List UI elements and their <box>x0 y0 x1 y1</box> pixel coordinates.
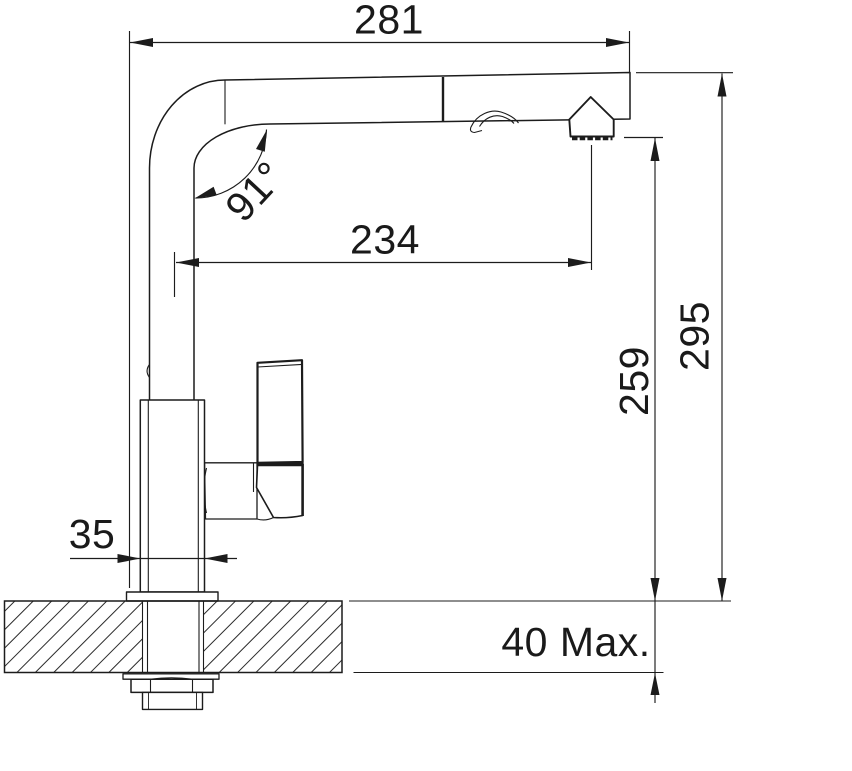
countertop-hatch-left <box>5 602 143 673</box>
dim-label-spout-reach: 281 <box>354 0 424 43</box>
arrowhead-right <box>205 554 228 563</box>
arrowhead-lower <box>195 187 217 199</box>
dimension-outlet-height: 259 <box>611 138 663 602</box>
dim-label-deck-thickness: 40 Max. <box>501 619 650 665</box>
base-plate <box>127 592 219 601</box>
dim-label-outlet-reach: 234 <box>350 217 420 263</box>
dim-label-body-width: 35 <box>69 511 116 557</box>
faucet-dimension-drawing: 281 91° 234 259 295 35 <box>0 0 852 771</box>
mounting-nut <box>131 679 213 692</box>
countertop-hatch-right <box>204 602 342 673</box>
dimension-spout-angle: 91° <box>195 130 294 231</box>
body-housing <box>140 400 204 592</box>
dim-label-outlet-height: 259 <box>611 346 657 416</box>
handle-socket <box>257 466 303 518</box>
washer <box>123 674 219 679</box>
arrowhead-bottom <box>651 578 660 601</box>
arrowhead-right <box>568 258 591 267</box>
arrowhead-up <box>651 673 660 695</box>
arrowhead-top <box>651 138 660 161</box>
dim-label-total-height: 295 <box>672 301 718 371</box>
mounting-body <box>127 400 219 601</box>
handle-lever <box>204 360 304 520</box>
tailpiece <box>143 692 203 709</box>
arrowhead-upper <box>256 130 267 152</box>
dim-label-spout-angle: 91° <box>216 153 293 231</box>
pullout-clip-tab <box>470 127 482 133</box>
arrowhead-right <box>606 38 629 47</box>
arrowhead-bottom <box>718 578 727 601</box>
handle-socket-curl <box>257 518 274 520</box>
arrowhead-top <box>718 74 727 97</box>
handle-grip <box>258 360 303 463</box>
dimension-total-height: 295 <box>636 73 733 601</box>
handle-connector <box>205 463 258 519</box>
drawing-canvas: 281 91° 234 259 295 35 <box>0 0 852 771</box>
dimension-deck-thickness: 40 Max. <box>501 601 659 703</box>
dimension-outlet-reach: 234 <box>175 145 592 297</box>
undermount-hardware <box>123 674 219 710</box>
arrowhead-left <box>130 38 153 47</box>
